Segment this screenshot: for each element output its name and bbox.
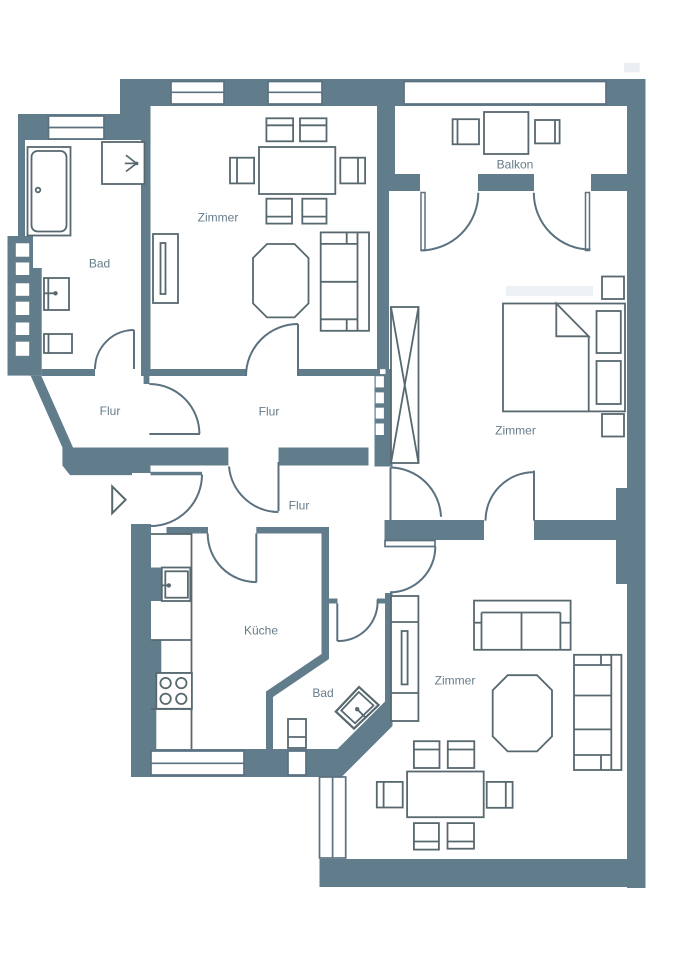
- svg-text:Bad: Bad: [312, 686, 333, 700]
- svg-text:Flur: Flur: [259, 405, 280, 419]
- svg-text:Zimmer: Zimmer: [198, 211, 239, 225]
- svg-text:Küche: Küche: [244, 624, 278, 638]
- svg-text:Balkon: Balkon: [497, 158, 534, 172]
- svg-text:Zimmer: Zimmer: [495, 424, 536, 438]
- svg-text:Flur: Flur: [100, 404, 121, 418]
- svg-text:Flur: Flur: [289, 499, 310, 513]
- svg-text:Bad: Bad: [89, 257, 110, 271]
- svg-text:Zimmer: Zimmer: [435, 674, 476, 688]
